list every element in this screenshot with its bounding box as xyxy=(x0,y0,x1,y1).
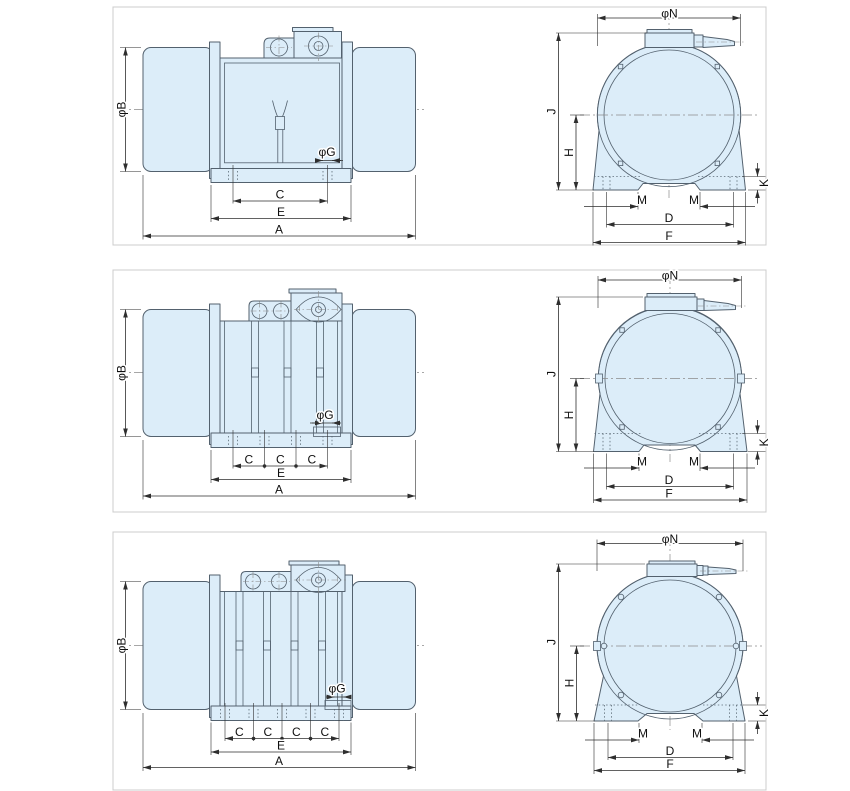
dim-label-j: J xyxy=(545,639,559,645)
gland-base xyxy=(694,35,703,47)
dim-label-c2: C xyxy=(263,725,272,739)
dim-label-c1: C xyxy=(235,725,244,739)
dim-label-m-left: M xyxy=(637,455,647,469)
dim-label-d: D xyxy=(666,744,675,758)
dim-label-phi-g: φG xyxy=(328,682,345,696)
dim-label-f: F xyxy=(666,757,673,771)
terminal-box xyxy=(291,565,345,592)
dim-label-c1: C xyxy=(244,453,253,467)
left-flange xyxy=(210,575,221,718)
right-flange xyxy=(342,575,353,718)
dim-label-m-right: M xyxy=(692,727,702,741)
dim-label-h: H xyxy=(562,148,576,157)
drawing-sheet: φB φG C E A xyxy=(0,0,850,791)
dim-label-f: F xyxy=(665,229,672,243)
dim-label-phi-n: φN xyxy=(661,7,677,21)
terminal-box-lid xyxy=(289,561,339,565)
terminal-box-lid xyxy=(293,28,334,32)
dim-label-phi-b: φB xyxy=(115,102,129,118)
row-1: φB φG C E A xyxy=(113,7,771,246)
dim-label-h: H xyxy=(562,411,576,420)
dim-label-e: E xyxy=(277,739,285,753)
left-weight-cover xyxy=(143,310,213,437)
dim-label-c4: C xyxy=(320,725,329,739)
mounting-base xyxy=(211,706,351,721)
terminal-box xyxy=(645,297,697,311)
left-flange xyxy=(210,304,221,445)
mounting-base xyxy=(211,433,351,448)
row-3: φB φG C C C C E A xyxy=(113,532,771,790)
left-flange xyxy=(210,42,221,179)
dim-label-k: K xyxy=(757,709,771,717)
left-weight-cover xyxy=(143,582,213,710)
right-flange xyxy=(342,304,353,445)
right-weight-cover xyxy=(352,310,416,437)
gland-base xyxy=(697,566,703,576)
dim-label-a: A xyxy=(275,754,283,768)
terminal-box xyxy=(294,32,342,59)
dim-label-h: H xyxy=(563,679,577,688)
dim-label-m-left: M xyxy=(637,193,647,207)
dim-label-phi-g: φG xyxy=(318,145,335,159)
dim-label-e: E xyxy=(277,466,285,480)
dim-label-c3: C xyxy=(307,453,316,467)
gland-nut xyxy=(703,566,708,575)
dim-label-c: C xyxy=(276,188,285,202)
dim-label-c3: C xyxy=(292,725,301,739)
motor-body xyxy=(220,592,342,707)
terminal-box-lid xyxy=(649,561,695,564)
dim-label-c2: C xyxy=(276,453,285,467)
left-weight-cover xyxy=(143,48,213,172)
dim-label-e: E xyxy=(277,205,285,219)
dim-label-f: F xyxy=(665,487,672,501)
dim-label-a: A xyxy=(275,223,283,237)
dim-label-phi-b: φB xyxy=(115,638,129,654)
dim-label-j: J xyxy=(545,371,559,377)
dim-label-phi-n: φN xyxy=(662,532,678,546)
dim-label-phi-n: φN xyxy=(662,269,678,283)
terminal-box xyxy=(647,564,697,577)
dim-label-k: K xyxy=(757,438,771,446)
dim-label-d: D xyxy=(665,473,674,487)
dim-label-m-right: M xyxy=(689,193,699,207)
mounting-base xyxy=(211,169,351,183)
dim-label-m-left: M xyxy=(638,727,648,741)
row-2: φB φG C C C E A xyxy=(113,269,771,513)
terminal-box-lid xyxy=(647,294,695,298)
terminal-box-lid xyxy=(289,289,336,293)
dim-label-phi-b: φB xyxy=(115,365,129,381)
dim-label-m-right: M xyxy=(689,455,699,469)
right-weight-cover xyxy=(352,48,416,172)
gland-base xyxy=(697,299,704,311)
dim-label-d: D xyxy=(665,211,674,225)
right-weight-cover xyxy=(352,582,416,710)
terminal-box-lid xyxy=(647,30,692,34)
dim-label-k: K xyxy=(757,179,771,187)
dim-label-a: A xyxy=(275,483,283,497)
dim-label-phi-g: φG xyxy=(316,408,333,422)
dim-label-j: J xyxy=(545,109,559,115)
right-flange xyxy=(342,42,353,179)
terminal-box xyxy=(645,33,694,48)
technical-drawing-canvas: φB φG C E A xyxy=(0,0,850,791)
